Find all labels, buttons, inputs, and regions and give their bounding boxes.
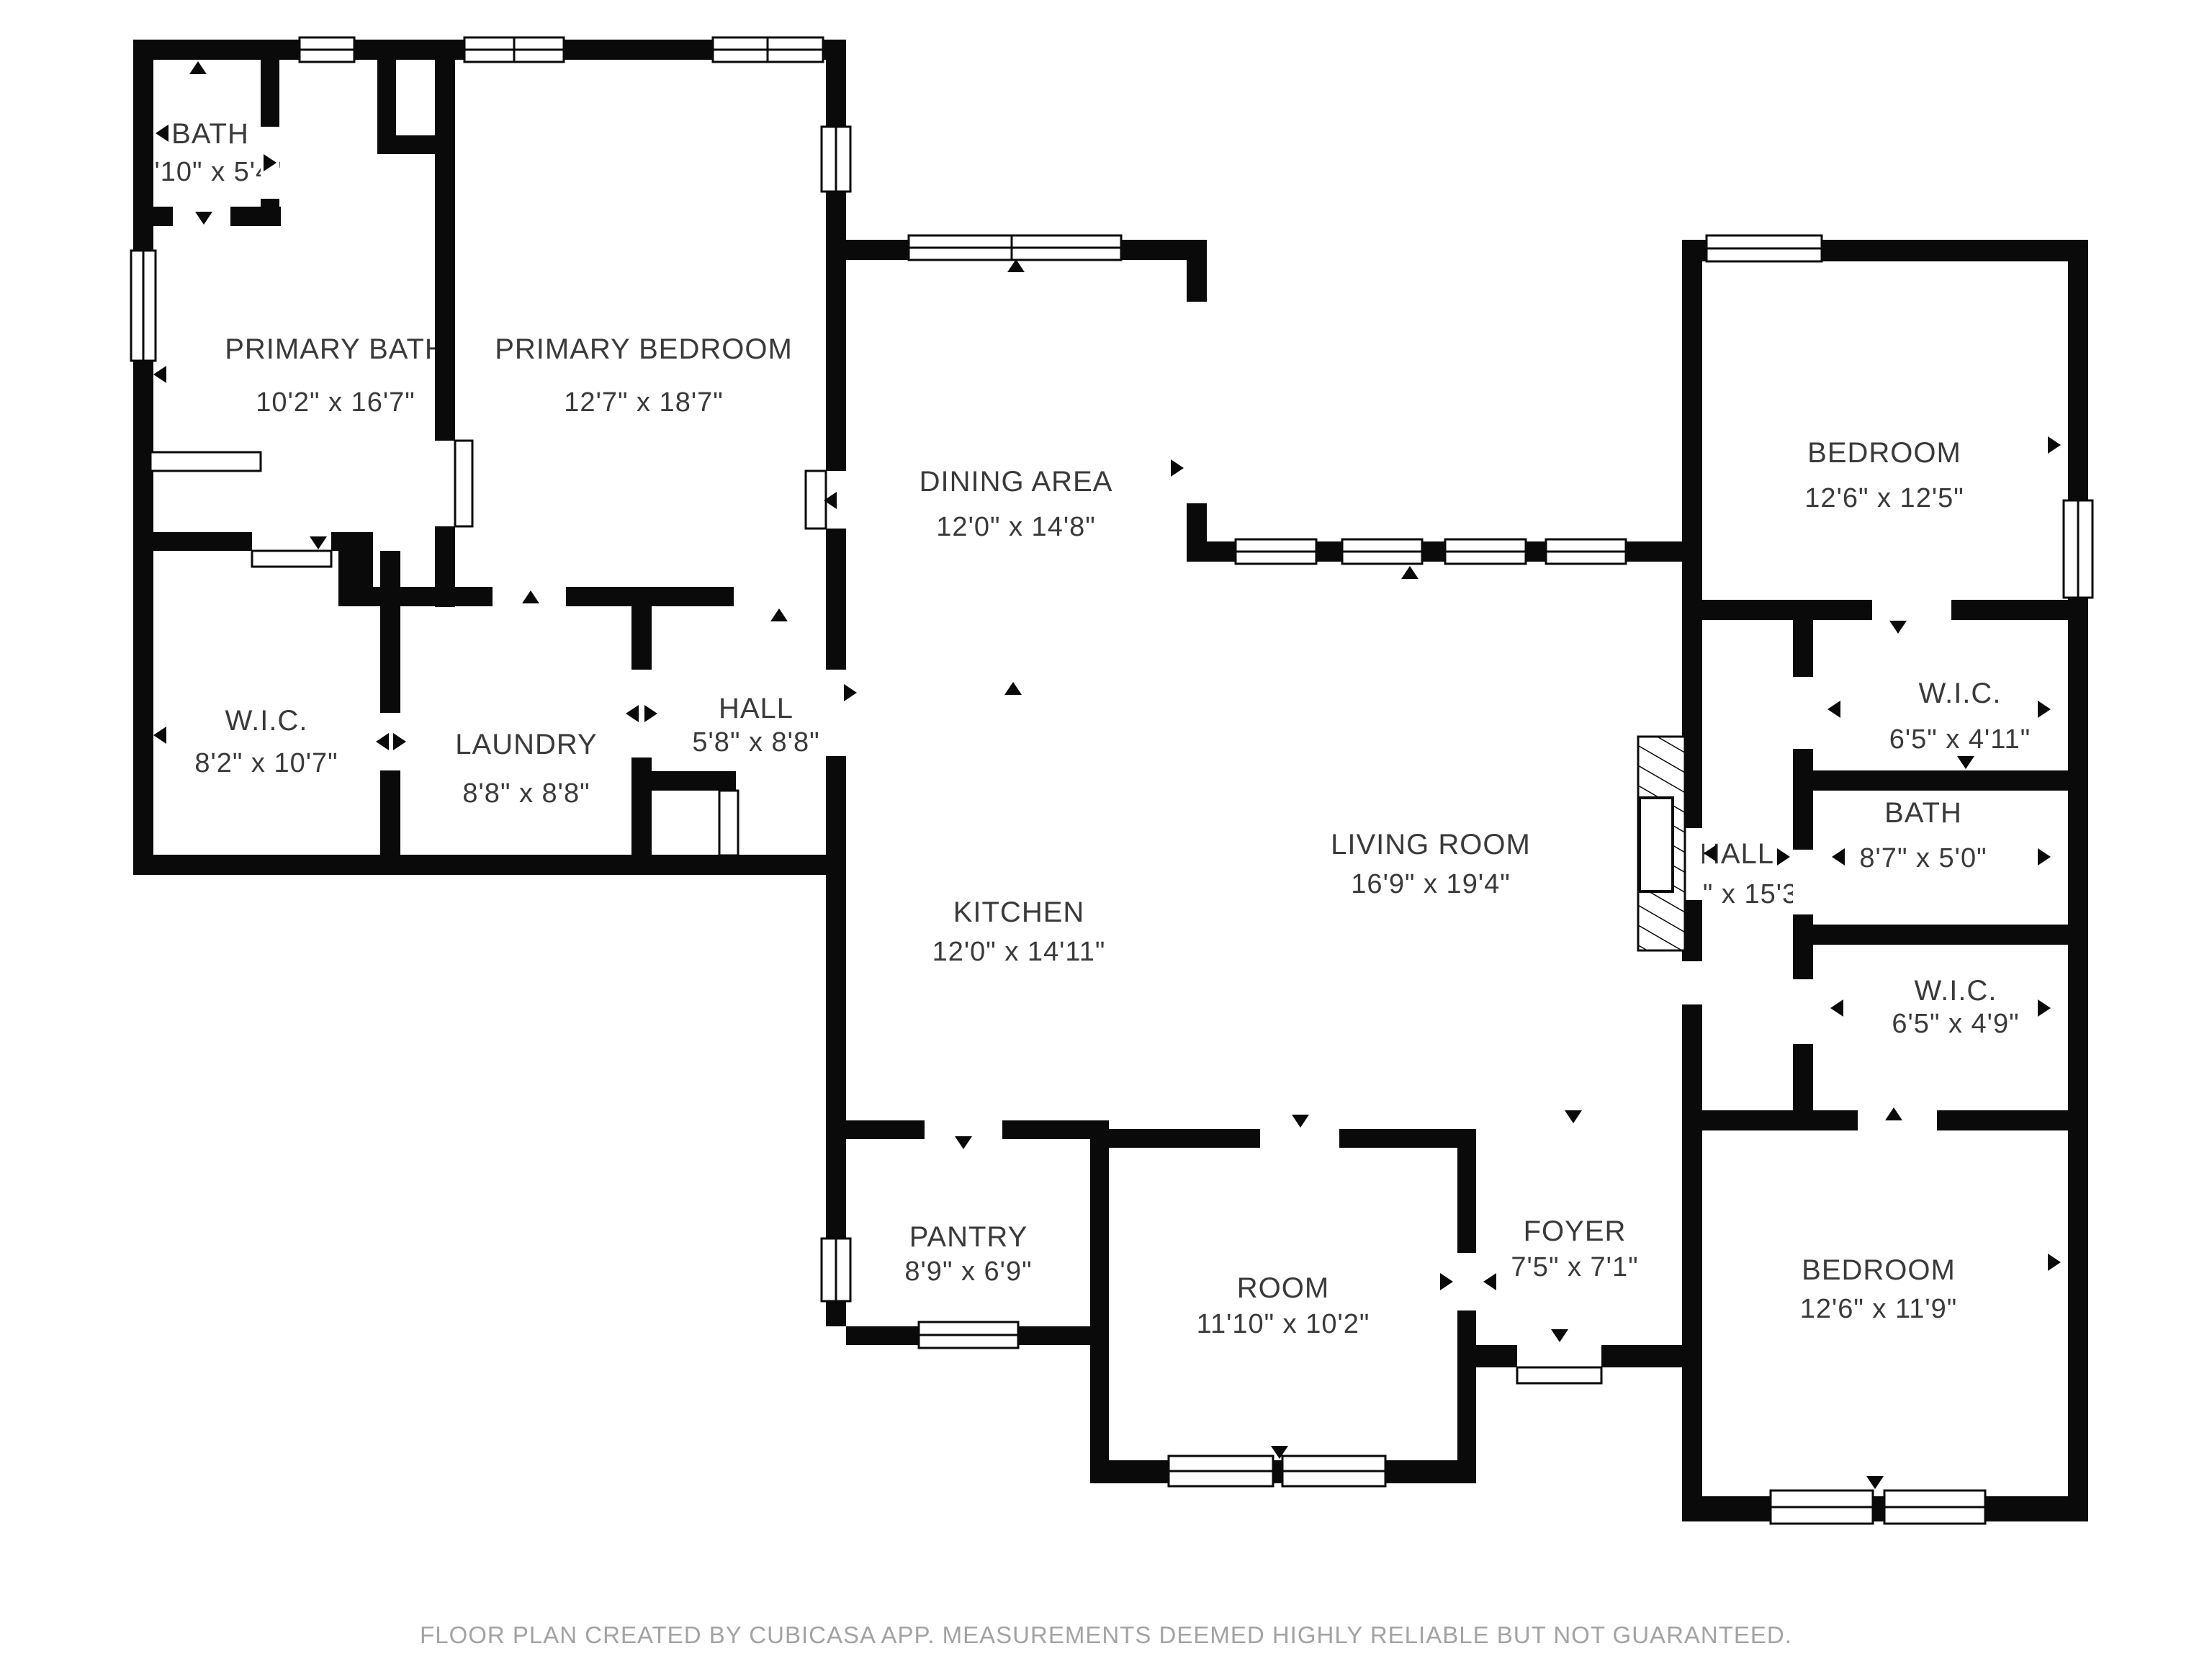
window-symbol: [1546, 539, 1626, 564]
door-arrow-icon: [1827, 701, 1840, 718]
window-symbol: [1884, 1491, 1985, 1524]
room-name-hall-left: HALL: [719, 693, 793, 724]
room-name-wic-left: W.I.C.: [225, 705, 308, 737]
room-name-pantry: PANTRY: [909, 1221, 1028, 1253]
vanity-counter: [150, 452, 261, 471]
door-leaf: [455, 441, 472, 526]
door-opening: [1793, 850, 1813, 914]
room-dims-room: 11'10" x 10'2": [1197, 1309, 1370, 1339]
room-name-wic-right-upper: W.I.C.: [1919, 678, 2002, 709]
window-symbol: [1236, 539, 1316, 564]
room-dims-wic-right-upper: 6'5" x 4'11": [1889, 724, 2031, 755]
door-arrow-icon: [1777, 848, 1790, 866]
room-labels: BATH 3'10" x 5'4" PRIMARY BATH 10'2" x 1…: [138, 118, 2031, 1339]
door-arrow-icon: [189, 61, 207, 74]
window-symbol: [464, 37, 564, 62]
room-name-wic-right-lower: W.I.C.: [1915, 975, 1997, 1007]
door-arrow-icon: [2048, 1254, 2061, 1271]
door-arrow-icon: [153, 366, 166, 383]
room-name-room: ROOM: [1237, 1272, 1329, 1304]
door-opening: [826, 670, 846, 756]
window-symbol: [1707, 235, 1822, 261]
door-arrow-icon: [2038, 999, 2051, 1017]
floor-plan-svg: BATH 3'10" x 5'4" PRIMARY BATH 10'2" x 1…: [0, 0, 2212, 1659]
window-symbol: [1771, 1491, 1873, 1524]
door-opening: [1682, 961, 1702, 1004]
room-name-kitchen: KITCHEN: [953, 896, 1085, 928]
room-name-primary-bath: PRIMARY BATH: [225, 333, 446, 365]
footer-credit: FLOOR PLAN CREATED BY CUBICASA APP. MEAS…: [420, 1622, 1792, 1648]
room-name-bath-right: BATH: [1884, 797, 1962, 829]
room-name-primary-bedroom: PRIMARY BEDROOM: [495, 333, 793, 365]
window-symbol: [2064, 500, 2092, 598]
door-arrow-icon: [1401, 566, 1419, 579]
window-symbol: [1445, 539, 1526, 564]
door-arrow-icon: [1832, 848, 1845, 866]
door-arrow-icon: [1551, 1329, 1568, 1342]
door-arrow-icon: [1004, 682, 1022, 695]
room-dims-hall-left: 5'8" x 8'8": [692, 727, 819, 757]
door-arrow-icon: [1866, 1476, 1884, 1489]
door-opening: [1872, 600, 1951, 620]
door-arrow-icon: [1007, 259, 1025, 272]
door-leaf: [719, 791, 738, 855]
room-name-laundry: LAUNDRY: [455, 729, 597, 760]
door-arrow-icon: [156, 125, 168, 142]
room-dims-pantry: 8'9" x 6'9": [904, 1256, 1032, 1287]
room-dims-living-room: 16'9" x 19'4": [1351, 869, 1510, 899]
window-symbol: [1342, 539, 1422, 564]
door-arrow-icon: [1440, 1273, 1453, 1290]
room-dims-wic-right-lower: 6'5" x 4'9": [1892, 1009, 2019, 1039]
door-arrow-icon: [1889, 621, 1907, 634]
door-arrow-icon: [1483, 1273, 1496, 1290]
door-arrow-icon: [1292, 1115, 1309, 1128]
window-symbol: [1169, 1456, 1273, 1486]
door-arrow-icon: [2048, 436, 2061, 454]
room-name-foyer: FOYER: [1524, 1215, 1627, 1247]
stair-landing: [1640, 798, 1673, 891]
floor-plan-canvas: BATH 3'10" x 5'4" PRIMARY BATH 10'2" x 1…: [0, 0, 2212, 1659]
room-name-bedroom-bot-right: BEDROOM: [1802, 1254, 1956, 1286]
door-opening: [1793, 979, 1813, 1044]
door-opening: [1457, 1253, 1476, 1310]
window-symbol: [300, 37, 354, 62]
room-dims-bath-small: 3'10" x 5'4": [138, 157, 282, 187]
door-arrow-icon: [1565, 1110, 1582, 1123]
window-symbol: [1282, 1456, 1385, 1486]
room-dims-bath-right: 8'7" x 5'0": [1859, 843, 1987, 873]
window-symbol: [909, 235, 1121, 260]
door-leaf: [806, 471, 826, 529]
left-wing-walls: [133, 40, 846, 1326]
window-symbol: [713, 37, 823, 62]
window-symbol: [822, 127, 850, 192]
window-symbol: [919, 1322, 1018, 1348]
room-dims-wic-left: 8'2" x 10'7": [194, 748, 338, 778]
door-arrow-icon: [770, 608, 788, 621]
door-arrow-icon: [2038, 701, 2051, 718]
room-dims-kitchen: 12'0" x 14'11": [932, 937, 1106, 967]
front-door-leaf: [1517, 1367, 1601, 1383]
room-dims-bedroom-bot-right: 12'6" x 11'9": [1800, 1294, 1958, 1324]
door-opening: [1260, 1129, 1339, 1148]
window-symbol: [131, 251, 156, 361]
room-dims-primary-bath: 10'2" x 16'7": [256, 387, 415, 418]
room-name-dining-area: DINING AREA: [920, 466, 1113, 498]
door-arrow-icon: [955, 1136, 972, 1149]
door-arrow-icon: [1957, 756, 1974, 769]
window-symbol: [822, 1238, 850, 1301]
door-arrow-icon: [1171, 459, 1184, 477]
door-arrow-icon: [153, 727, 166, 744]
room-dims-dining-area: 12'0" x 14'8": [936, 512, 1095, 542]
room-name-living-room: LIVING ROOM: [1331, 829, 1531, 860]
door-opening: [734, 587, 826, 606]
room-name-bath-small: BATH: [171, 118, 249, 150]
room-dims-bedroom-top-right: 12'6" x 12'5": [1804, 483, 1964, 513]
room-dims-primary-bedroom: 12'7" x 18'7": [564, 387, 723, 418]
room-name-bedroom-top-right: BEDROOM: [1807, 437, 1961, 469]
door-arrow-icon: [844, 684, 857, 701]
door-opening: [1793, 677, 1813, 749]
room-dims-foyer: 7'5" x 7'1": [1511, 1252, 1638, 1282]
door-arrow-icon: [2038, 848, 2051, 866]
front-door-opening: [1517, 1345, 1601, 1367]
room-dims-laundry: 8'8" x 8'8": [462, 778, 590, 809]
door-arrow-icon: [1830, 999, 1843, 1017]
staircase: [1638, 737, 1685, 950]
door-opening: [435, 441, 455, 526]
door-leaf: [252, 551, 331, 567]
